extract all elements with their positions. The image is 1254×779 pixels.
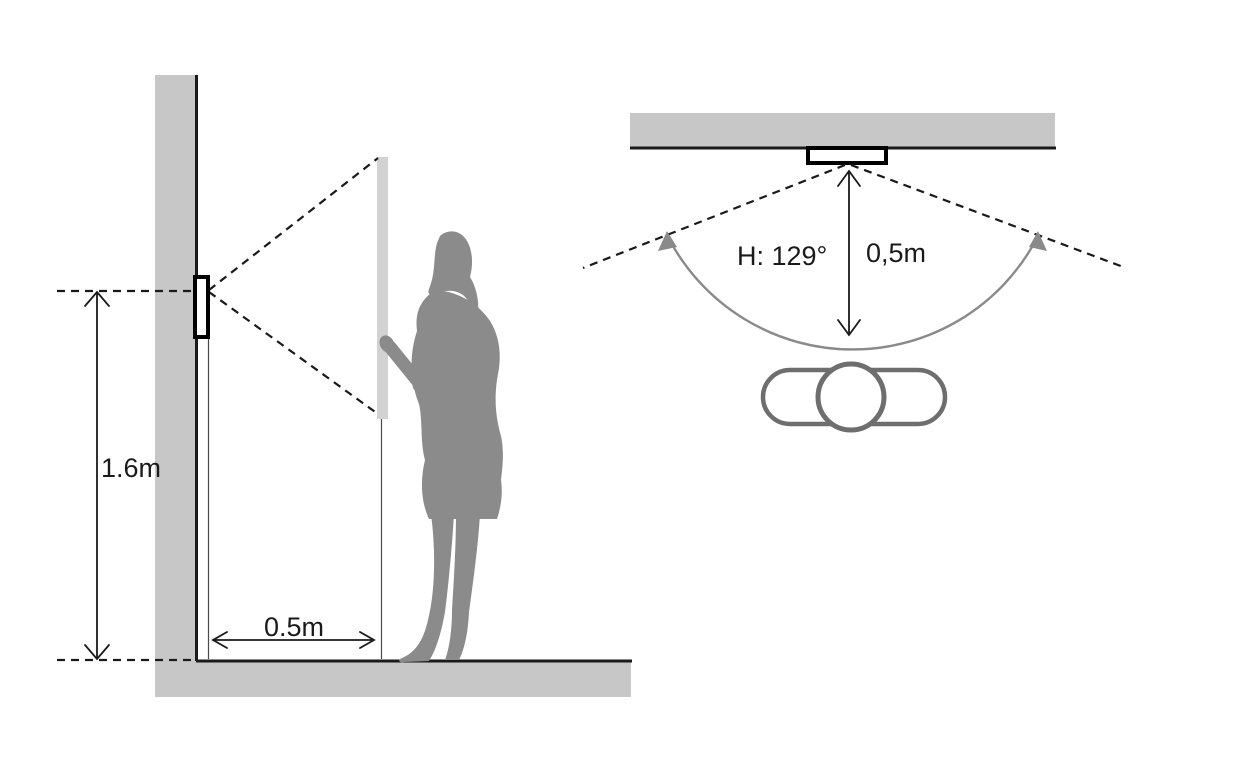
diagram-canvas: 1.6m 0.5m <box>0 0 1254 779</box>
horizontal-fov-label: H: 129° <box>737 241 827 271</box>
person-top-view <box>763 364 945 430</box>
fov-lower-dashed-ray <box>209 292 378 414</box>
top-view-diagram: H: 129° 0,5m <box>583 113 1126 430</box>
side-view-diagram: 1.6m 0.5m <box>57 75 632 697</box>
fov-angle-arc <box>668 237 1037 349</box>
floor <box>155 661 631 697</box>
sensor-side-view-icon <box>195 277 208 337</box>
sensor-top-view-icon <box>808 148 886 163</box>
wall-distance-label: 0.5m <box>264 612 324 642</box>
top-wall-distance-label: 0,5m <box>866 238 926 268</box>
top-distance-dimension-arrow <box>838 171 860 335</box>
display-panel <box>377 157 388 419</box>
mounting-height-label: 1.6m <box>101 453 161 483</box>
installation-diagram: 1.6m 0.5m <box>0 0 1254 779</box>
person-silhouette <box>376 231 502 662</box>
fov-upper-dashed-ray <box>209 158 378 290</box>
side-wall <box>155 75 197 697</box>
top-wall <box>630 113 1055 147</box>
person-front-leg <box>399 514 454 662</box>
person-head-top <box>818 364 884 430</box>
